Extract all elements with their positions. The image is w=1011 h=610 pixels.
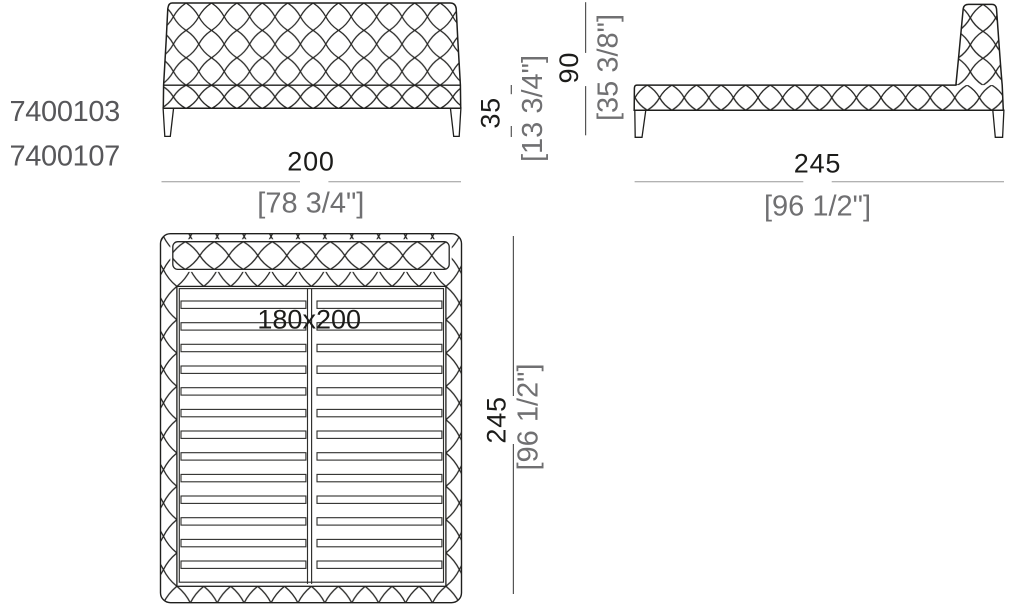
svg-text:180x200: 180x200	[257, 305, 361, 335]
svg-text:7400107: 7400107	[10, 140, 120, 172]
svg-text:[96 1/2"]: [96 1/2"]	[764, 191, 871, 223]
svg-text:7400103: 7400103	[10, 96, 120, 128]
svg-text:[35 3/8"]: [35 3/8"]	[593, 14, 625, 121]
svg-text:245: 245	[481, 396, 511, 443]
svg-text:[96 1/2"]: [96 1/2"]	[512, 363, 544, 470]
svg-text:200: 200	[287, 147, 334, 177]
svg-text:[78 3/4"]: [78 3/4"]	[257, 188, 364, 220]
svg-text:35: 35	[476, 97, 506, 129]
svg-text:90: 90	[554, 52, 584, 84]
svg-text:245: 245	[794, 148, 841, 178]
svg-text:[13 3/4"]: [13 3/4"]	[517, 55, 549, 162]
